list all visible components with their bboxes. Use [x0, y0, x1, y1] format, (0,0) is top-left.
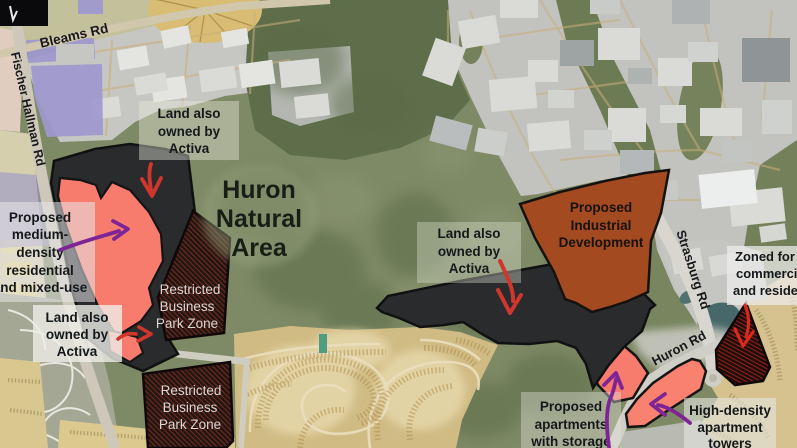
- svg-text:High-density: High-density: [689, 403, 771, 418]
- svg-text:towers: towers: [708, 436, 752, 448]
- svg-text:Zoned for: Zoned for: [735, 249, 795, 264]
- svg-text:Land also: Land also: [45, 310, 108, 325]
- svg-text:Proposed: Proposed: [540, 399, 602, 414]
- svg-text:and residential: and residential: [733, 283, 797, 298]
- svg-text:Proposed: Proposed: [570, 200, 632, 215]
- svg-text:apartment: apartment: [697, 420, 763, 435]
- svg-text:and mixed-use: and mixed-use: [0, 280, 88, 295]
- svg-text:owned by: owned by: [158, 124, 221, 139]
- svg-text:Area: Area: [231, 234, 288, 262]
- svg-text:Restricted: Restricted: [161, 383, 222, 398]
- svg-text:Natural: Natural: [216, 205, 302, 233]
- svg-text:owned by: owned by: [438, 244, 501, 259]
- svg-text:owned by: owned by: [46, 327, 109, 342]
- svg-text:commercial: commercial: [736, 266, 797, 281]
- svg-text:Park Zone: Park Zone: [156, 316, 218, 331]
- svg-text:Proposed: Proposed: [9, 210, 71, 225]
- svg-text:Park Zone: Park Zone: [159, 417, 221, 432]
- svg-text:Business: Business: [160, 299, 215, 314]
- svg-text:apartments: apartments: [535, 417, 608, 432]
- svg-text:medium-: medium-: [12, 227, 68, 242]
- svg-text:Restricted: Restricted: [160, 282, 221, 297]
- svg-text:Activa: Activa: [57, 344, 98, 359]
- svg-text:Land also: Land also: [437, 226, 500, 241]
- svg-text:Industrial: Industrial: [571, 218, 632, 233]
- svg-text:Huron: Huron: [222, 176, 296, 204]
- svg-text:density: density: [16, 245, 64, 260]
- svg-text:Business: Business: [163, 400, 218, 415]
- svg-text:Activa: Activa: [169, 141, 210, 156]
- svg-text:Activa: Activa: [449, 261, 490, 276]
- svg-text:Development: Development: [559, 235, 644, 250]
- svg-text:residential: residential: [6, 263, 74, 278]
- svg-text:with storage: with storage: [530, 434, 611, 448]
- svg-text:Land also: Land also: [157, 106, 220, 121]
